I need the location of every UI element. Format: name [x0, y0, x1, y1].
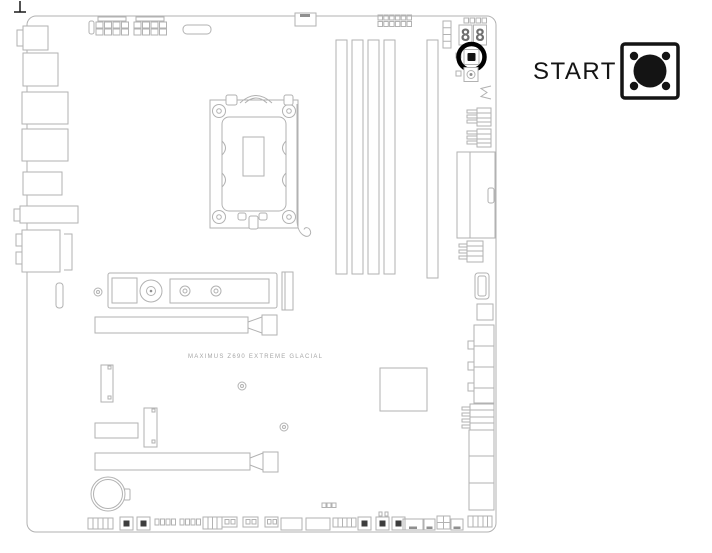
crop-mark-icon: [14, 1, 26, 12]
motherboard-outline: [27, 16, 496, 532]
start-callout: START: [533, 44, 678, 98]
start-callout-label: START: [533, 58, 617, 85]
board-model-label: MAXIMUS Z690 EXTREME GLACIAL: [188, 354, 323, 360]
start-power-button-icon: [622, 44, 678, 98]
diagram-canvas: 8 8: [0, 0, 712, 553]
motherboard-diagram: 8 8: [0, 0, 712, 553]
